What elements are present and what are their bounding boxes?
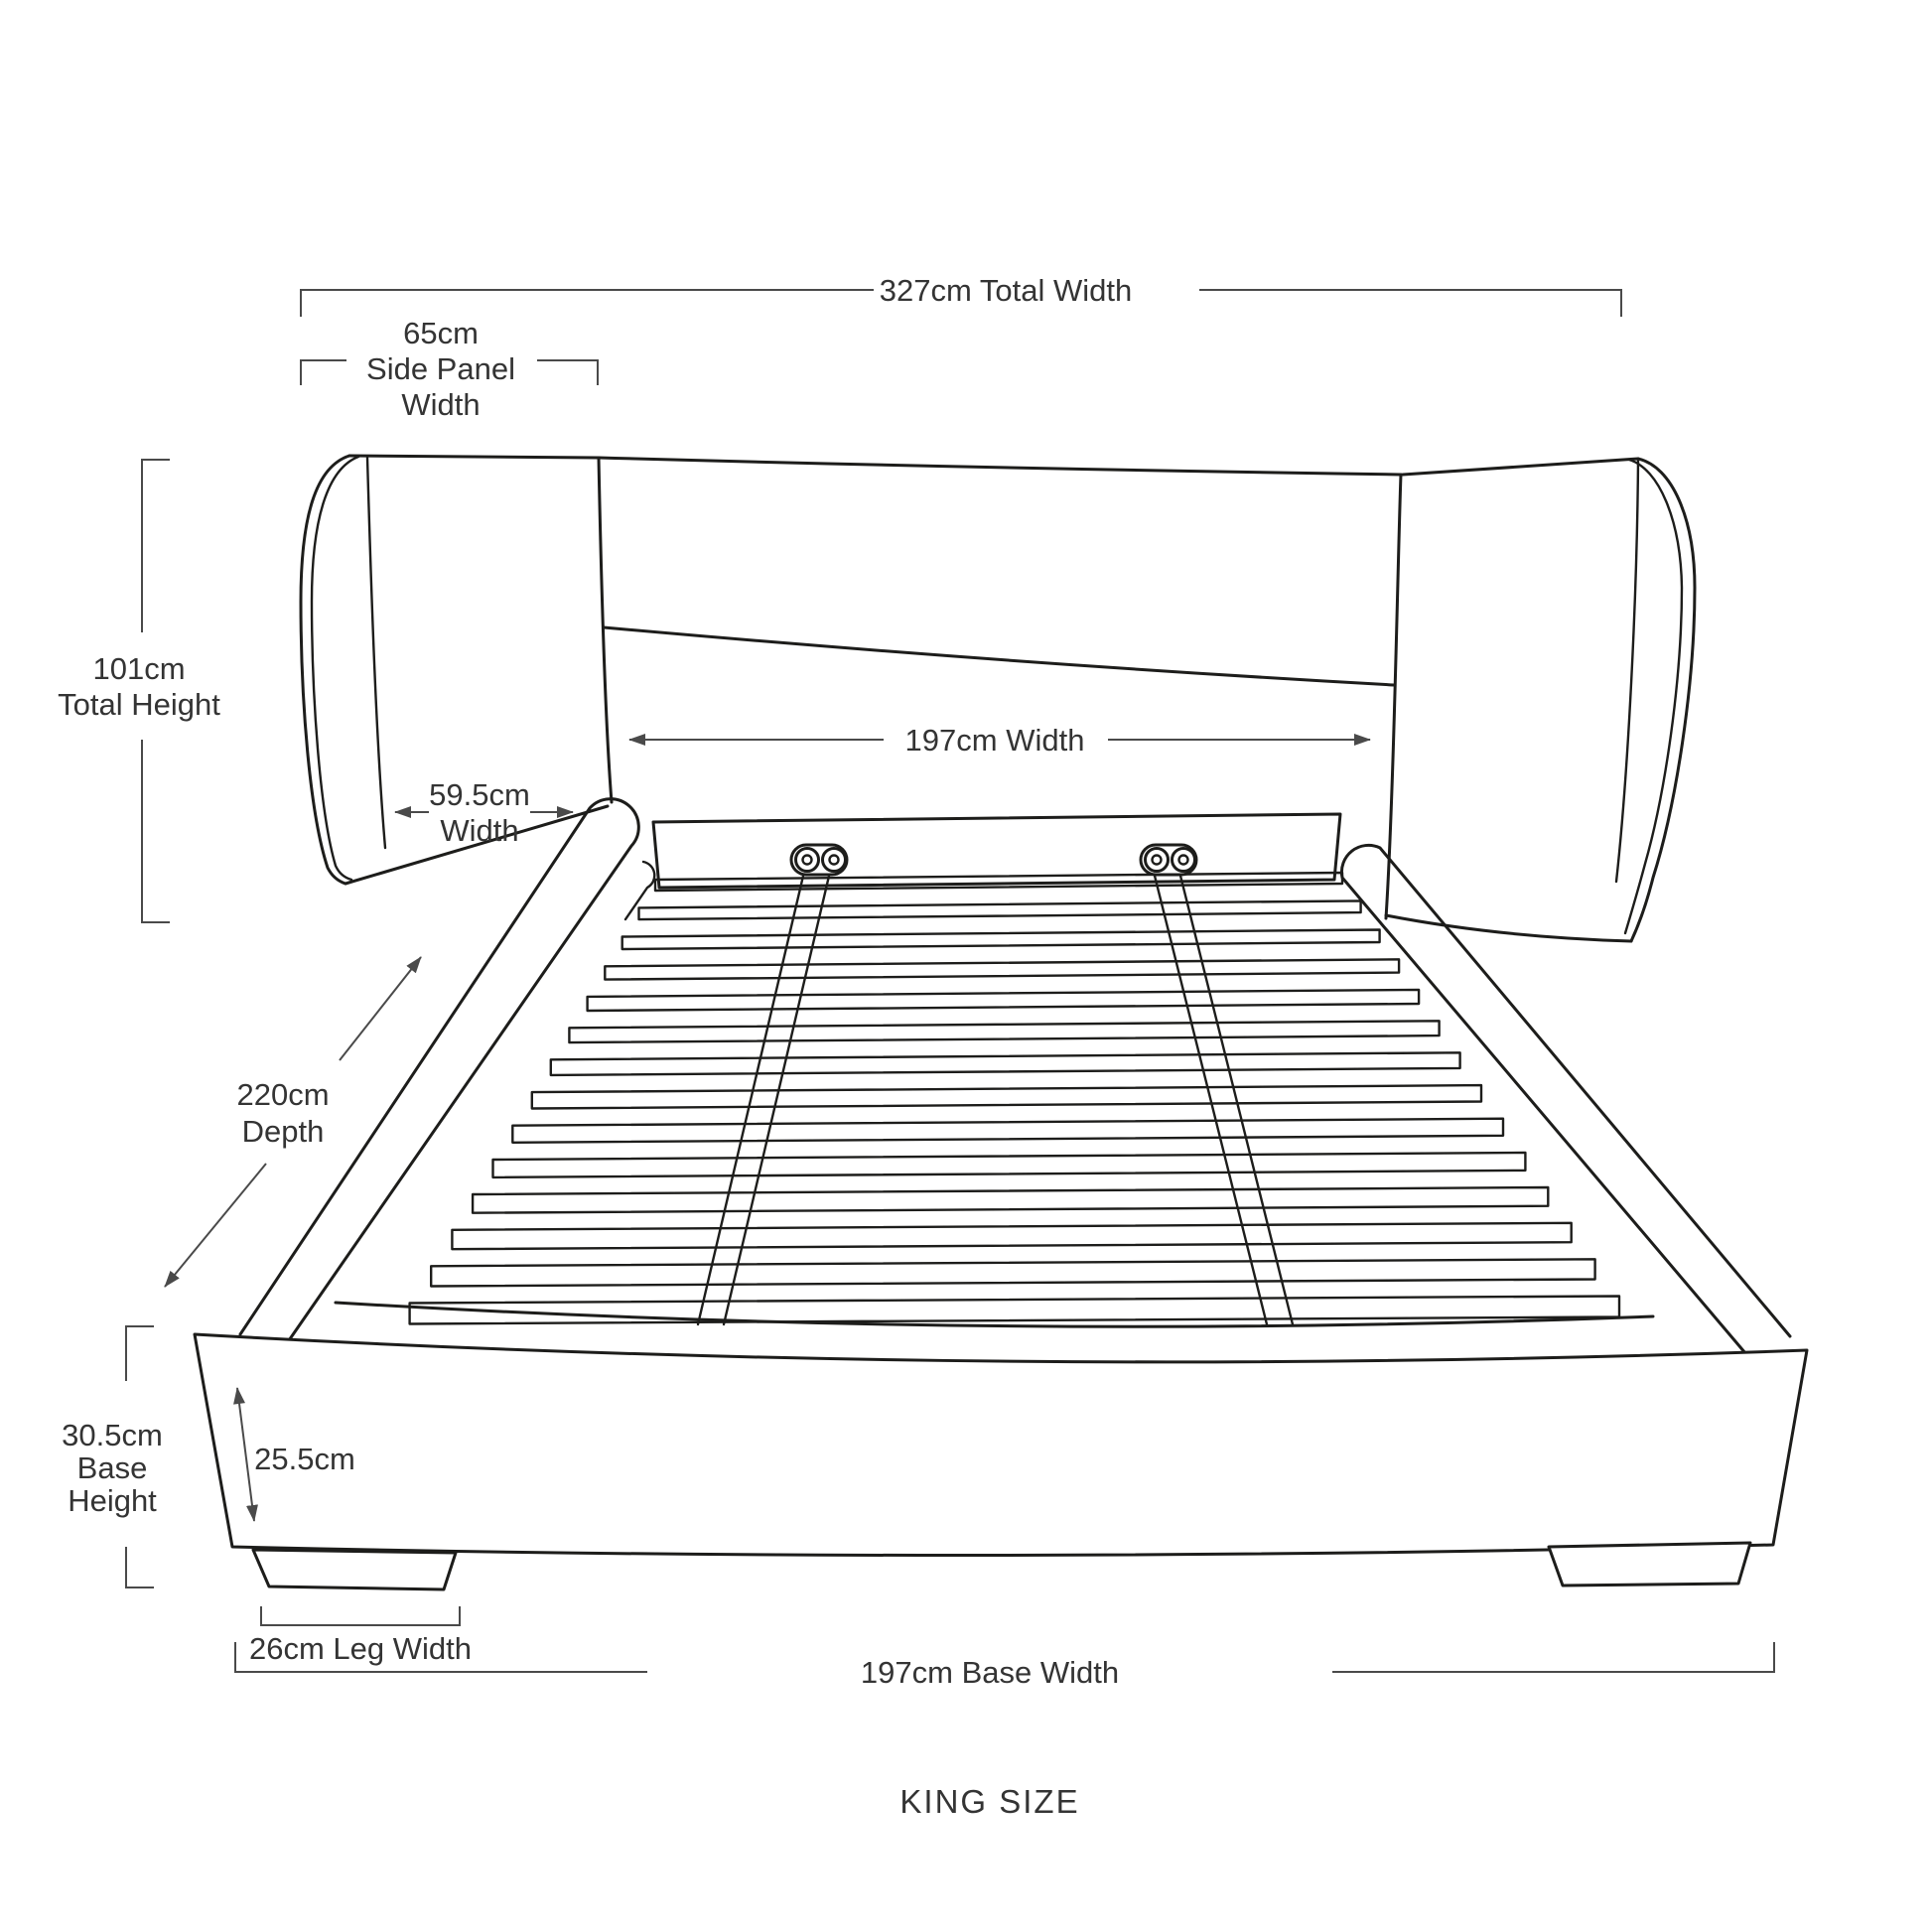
total-height-label-2: Total Height	[58, 687, 220, 722]
headboard-width-label: 197cm Width	[905, 723, 1085, 758]
slat	[569, 1021, 1439, 1042]
headboard-right-wing	[1386, 459, 1695, 941]
bed-drawing	[195, 456, 1807, 1589]
slat	[410, 1297, 1619, 1324]
support-rails	[698, 872, 1293, 1324]
slat	[493, 1153, 1526, 1177]
total-height-label-1: 101cm	[92, 651, 185, 686]
size-title: KING SIZE	[899, 1783, 1079, 1820]
leg-right	[1549, 1543, 1750, 1586]
base-height-label-1: 30.5cm	[62, 1418, 163, 1452]
base-height-label-2: Base	[77, 1450, 148, 1485]
inner-panel-label-2: Width	[440, 813, 518, 848]
side-panel-label-3: Width	[401, 387, 480, 422]
diagram-canvas: 327cm Total Width 65cm Side Panel Width …	[0, 0, 1932, 1932]
base-front-height-label: 25.5cm	[254, 1442, 355, 1476]
slat	[532, 1085, 1481, 1108]
inner-panel-label-1: 59.5cm	[429, 777, 530, 812]
slats	[410, 873, 1619, 1324]
leg-width-label: 26cm Leg Width	[249, 1631, 472, 1666]
leg-left	[253, 1550, 456, 1589]
slat	[431, 1259, 1594, 1286]
leg-width-bracket	[261, 1606, 460, 1625]
side-panel-label-1: 65cm	[403, 316, 479, 350]
slat	[551, 1052, 1460, 1075]
slat	[512, 1119, 1503, 1143]
depth-arrow-up	[340, 957, 421, 1060]
slat	[452, 1223, 1571, 1249]
base-height-label-3: Height	[68, 1483, 157, 1518]
base-width-label: 197cm Base Width	[861, 1655, 1119, 1690]
slat	[639, 900, 1361, 919]
depth-label-2: Depth	[242, 1114, 325, 1149]
slat	[473, 1187, 1548, 1213]
base-panel	[195, 1334, 1807, 1556]
depth-arrow-down	[165, 1164, 266, 1287]
slat	[588, 990, 1420, 1011]
hinge-left	[791, 845, 847, 875]
slat	[622, 930, 1380, 950]
side-panel-label-2: Side Panel	[366, 351, 515, 386]
hinge-right	[1141, 845, 1196, 875]
slat	[605, 959, 1399, 979]
depth-label-1: 220cm	[236, 1077, 329, 1112]
bed-dimension-diagram: 327cm Total Width 65cm Side Panel Width …	[0, 0, 1932, 1932]
total-width-label: 327cm Total Width	[880, 273, 1132, 308]
